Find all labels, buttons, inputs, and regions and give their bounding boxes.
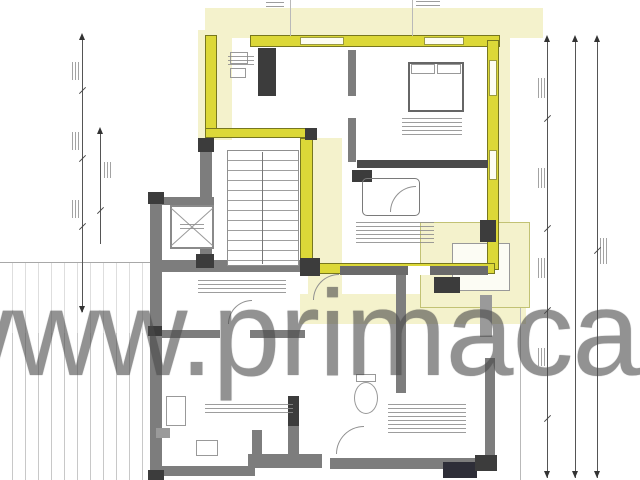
dim-line-right-1: [547, 38, 548, 478]
dim-label-right-5: [600, 238, 607, 264]
sink-2: [230, 68, 246, 78]
arrow-icon: [97, 127, 103, 134]
ext-line-top-1: [290, 0, 291, 36]
room-label-bedroom: [402, 118, 462, 138]
arrow-icon: [544, 471, 550, 478]
bedroom-wall-left-b: [348, 118, 356, 162]
dim-label-right-1: [538, 78, 545, 98]
bottom-left-wall: [150, 466, 255, 476]
window-right-2: [489, 150, 497, 180]
arrow-icon: [594, 471, 600, 478]
pier-8: [443, 462, 477, 478]
pier-1: [198, 138, 214, 152]
dim-label-right-2: [538, 168, 545, 188]
window-top-1: [300, 37, 344, 45]
dim-label-left-4: [104, 162, 111, 178]
stairs: [227, 150, 299, 266]
dim-label-left-1: [72, 62, 79, 80]
radiator: [156, 428, 170, 438]
door-arc-bottom: [336, 426, 364, 454]
room-label-bath: [228, 56, 254, 65]
room-label-corridor: [205, 404, 293, 415]
room-label-living: [356, 222, 434, 246]
dim-line-left-2: [100, 130, 101, 244]
interior-wall-c: [252, 430, 262, 458]
pier-10: [475, 455, 497, 471]
dim-label-left-3: [72, 200, 79, 218]
pier-7: [480, 220, 496, 242]
bed-pillow-2: [437, 64, 461, 74]
arrow-icon: [79, 33, 85, 40]
room-label-lower: [388, 404, 466, 434]
watermark-text: www.primacasa: [0, 272, 640, 394]
pier-5: [305, 128, 317, 140]
wardrobe: [258, 48, 276, 96]
window-top-2: [424, 37, 464, 45]
arrow-icon: [572, 471, 578, 478]
bedroom-wall-left-a: [348, 50, 356, 96]
washbasin: [196, 440, 218, 456]
highlight-wash-top: [205, 8, 543, 38]
arrow-icon: [594, 35, 600, 42]
apartment-wall-stair-side: [300, 138, 313, 270]
pier-9: [148, 470, 164, 480]
elevator-label: [180, 224, 204, 231]
dim-line-right-2: [575, 38, 576, 478]
arrow-icon: [572, 35, 578, 42]
dim-label-top-1: [416, 1, 440, 7]
apartment-wall-left-bottom: [205, 128, 313, 138]
pier-4: [148, 192, 164, 204]
dim-label-left-2: [72, 132, 79, 150]
stairs-divider: [262, 152, 263, 264]
bed-pillow-1: [411, 64, 435, 74]
elevator-wall-top: [162, 197, 214, 205]
ext-line-top-2: [412, 0, 413, 36]
floor-plan-image: www.primacasa: [0, 0, 640, 480]
dim-label-top-2: [266, 2, 284, 7]
apartment-wall-left: [205, 35, 217, 138]
window-right-1: [489, 60, 497, 96]
dim-line-right-3: [597, 38, 598, 478]
arrow-icon: [544, 35, 550, 42]
bedroom-living-wall: [357, 160, 488, 168]
